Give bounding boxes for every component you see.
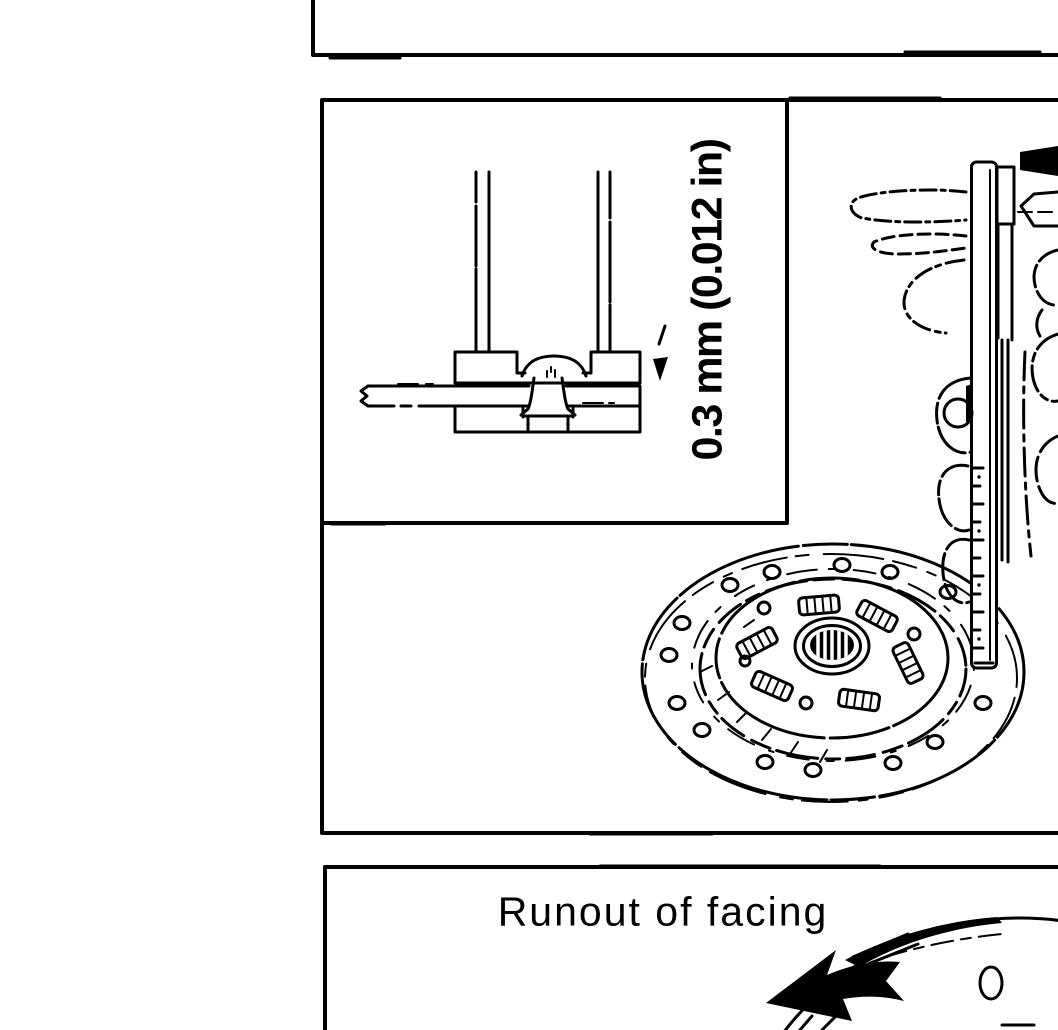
spline-hub bbox=[795, 618, 869, 674]
manual-page-scan: 0.3 mm (0.012 in) Runout of facing bbox=[0, 0, 1058, 1030]
figures-artwork bbox=[0, 0, 1058, 1030]
runout-figure-title: Runout of facing bbox=[498, 889, 829, 936]
rivet-cross-section-drawing bbox=[361, 172, 640, 432]
previous-figure-frame bbox=[313, 0, 1058, 58]
clutch-disc-drawing bbox=[642, 544, 1024, 802]
rotation-arrow-icon bbox=[766, 950, 904, 1021]
rivet-depth-label: 0.3 mm (0.012 in) bbox=[684, 139, 733, 460]
depth-arrow-icon bbox=[653, 326, 668, 381]
hand-drawing bbox=[851, 190, 1058, 603]
